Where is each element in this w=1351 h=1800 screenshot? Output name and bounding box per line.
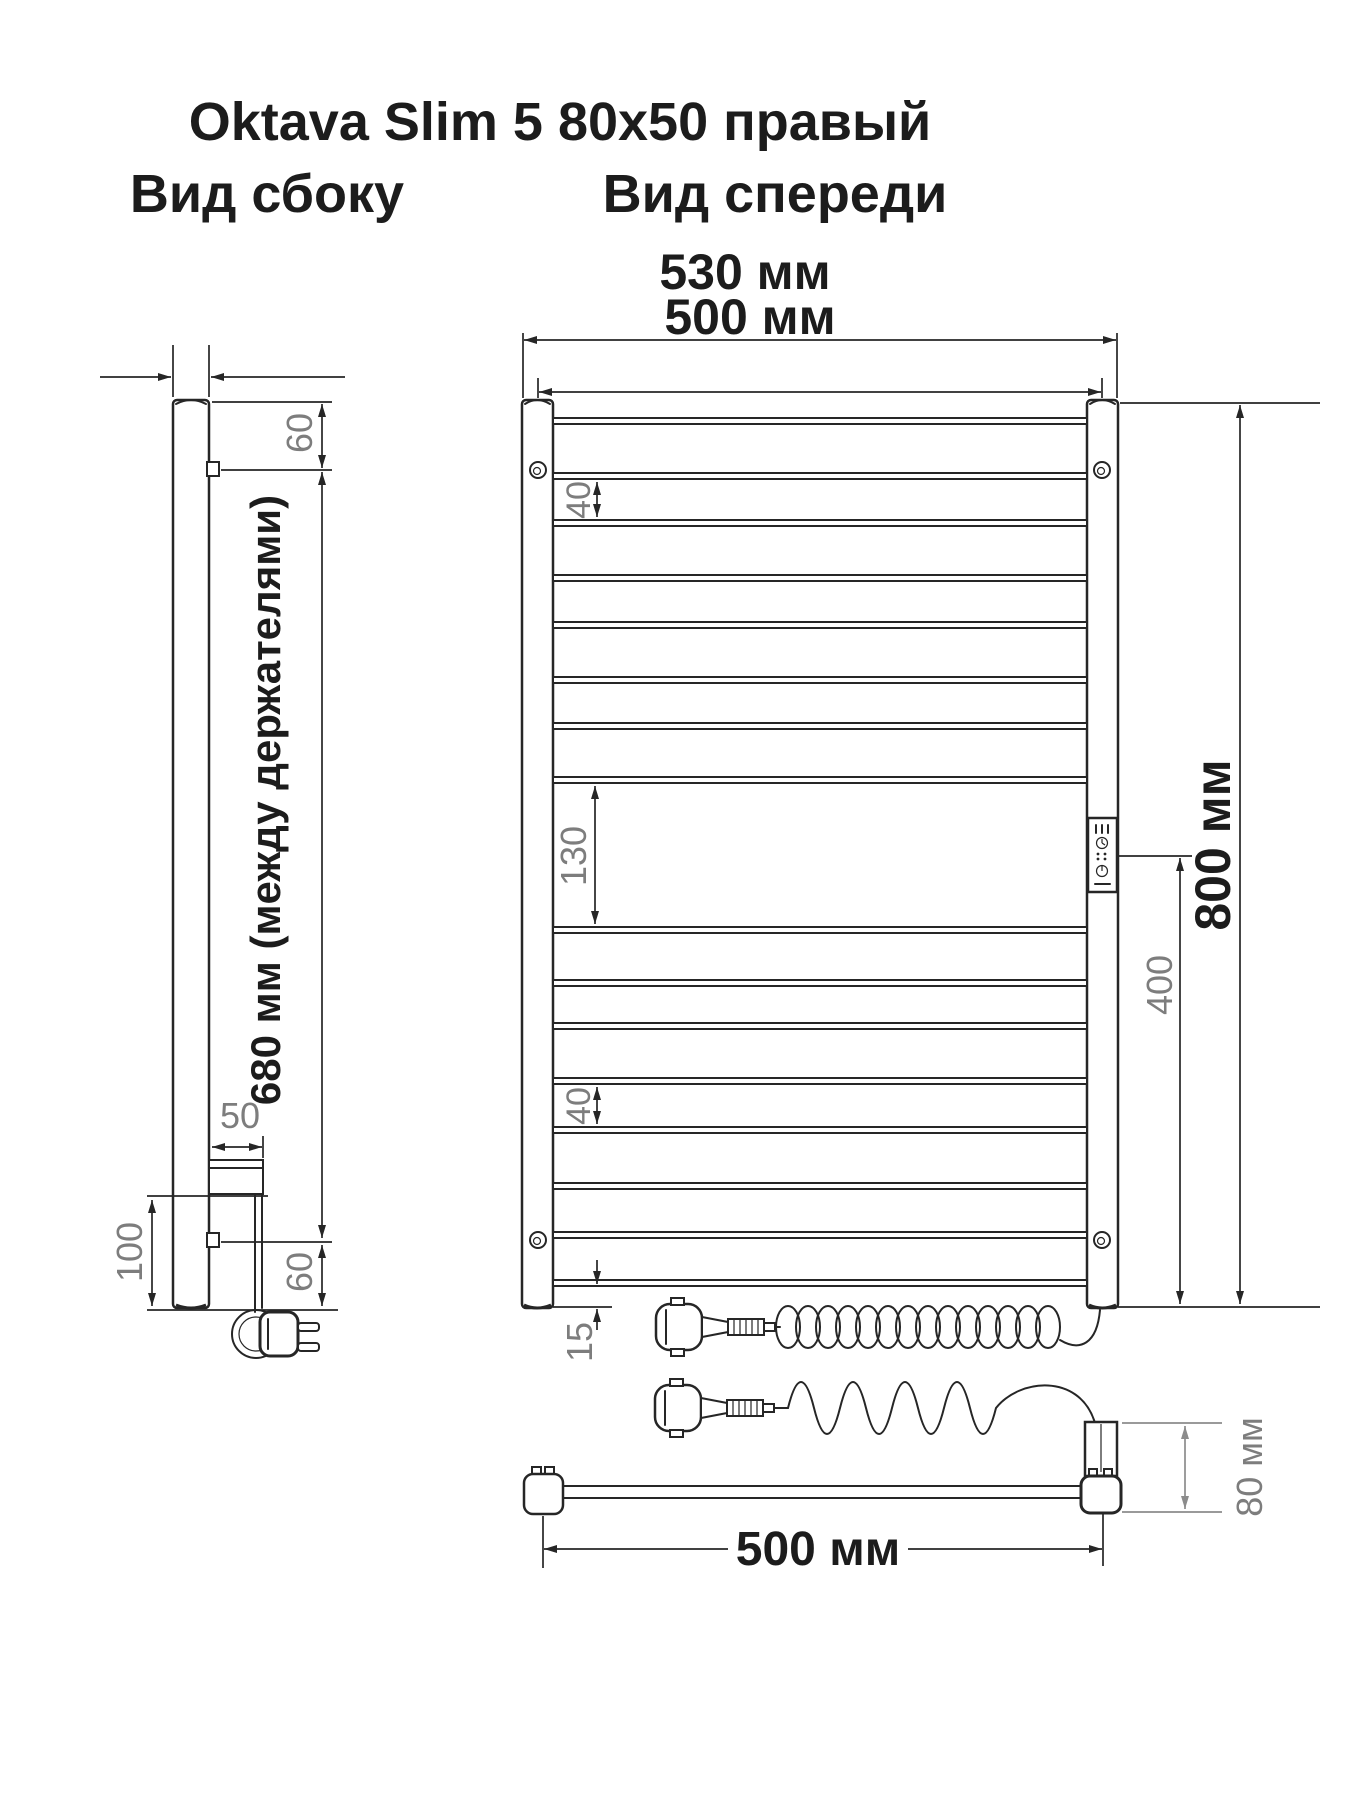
plug-pin-top (298, 1323, 319, 1331)
front-view: 530 мм 500 мм (522, 244, 1320, 1362)
technical-drawing: Oktava Slim 5 80x50 правый Вид сбоку Вид… (0, 0, 1351, 1800)
dim-rung-gap-bottom-value: 40 (560, 1087, 598, 1125)
dim-bottom-clearance: 15 (553, 1260, 612, 1362)
left-end-block (524, 1467, 563, 1514)
rung (553, 473, 1087, 479)
rung (553, 723, 1087, 729)
dim-overall-height-value: 800 мм (1185, 759, 1241, 930)
plug-pin-bottom (298, 1343, 319, 1351)
dim-top-offset: 60 (212, 402, 332, 470)
dim-holder-depth-value: 50 (220, 1095, 260, 1136)
rung (553, 520, 1087, 526)
dim-holder-depth: 50 (212, 1095, 263, 1158)
wavy-cable (774, 1382, 1095, 1434)
coiled-cable (775, 1306, 1100, 1348)
bottom-view: 80 мм 500 мм (524, 1379, 1270, 1576)
dim-axis-width: 500 мм (538, 289, 1102, 398)
dim-depth-value: 80 мм (1229, 1417, 1270, 1517)
heater-housing (1081, 1422, 1121, 1513)
dim-between-holders-value: 680 мм (между держателями) (242, 495, 289, 1105)
page-title: Oktava Slim 5 80x50 правый (189, 92, 932, 152)
dim-depth: 80 мм (1122, 1417, 1270, 1517)
side-view-label: Вид сбоку (130, 164, 404, 224)
dim-rung-gap-top-value: 40 (560, 481, 598, 519)
rung (553, 1232, 1087, 1238)
rung (553, 1183, 1087, 1189)
drawing-sheet: Oktava Slim 5 80x50 правый Вид сбоку Вид… (0, 0, 1351, 1800)
rung (553, 418, 1087, 424)
control-panel[interactable] (1088, 818, 1117, 892)
right-end-block (1081, 1476, 1121, 1513)
dim-bottom-offset-value: 60 (279, 1252, 320, 1292)
dim-panel-to-bottom-value: 400 (1139, 955, 1180, 1015)
plug-body (260, 1312, 298, 1356)
bracket-peg-bottom (207, 1233, 219, 1247)
rung (553, 1023, 1087, 1029)
dim-overall-height: 800 мм (1118, 403, 1320, 1307)
rung (553, 1078, 1087, 1084)
rung (553, 980, 1087, 986)
dim-group-gap-value: 130 (553, 826, 594, 886)
bracket-peg-top (207, 462, 219, 476)
dim-length: 500 мм (543, 1514, 1103, 1576)
side-tube (173, 400, 209, 1308)
power-plug (656, 1298, 775, 1356)
dim-rung-gap-bottom: 40 (560, 1087, 598, 1125)
rung (553, 927, 1087, 933)
dim-rung-gap-top: 40 (560, 481, 598, 519)
dim-bottom-offset: 60 (279, 1245, 322, 1306)
bottom-rail-tube (562, 1486, 1081, 1498)
rung (553, 1280, 1087, 1286)
rung (553, 575, 1087, 581)
rung (553, 777, 1087, 783)
rung (553, 1127, 1087, 1133)
dim-group-gap: 130 (553, 786, 595, 924)
side-view: 60 680 мм (между держателями) 60 50 (100, 345, 345, 1358)
front-view-label: Вид спереди (603, 164, 948, 224)
dim-panel-to-bottom: 400 (1119, 856, 1192, 1304)
dim-bottom-height-value: 100 (109, 1222, 150, 1282)
dim-tube-depth (100, 345, 345, 397)
side-power-plug (232, 1310, 319, 1358)
dim-length-value: 500 мм (736, 1523, 900, 1576)
rung (553, 677, 1087, 683)
rung (553, 622, 1087, 628)
dim-bottom-clearance-value: 15 (559, 1322, 600, 1362)
dim-top-offset-value: 60 (279, 413, 320, 453)
left-rail (522, 400, 553, 1308)
rungs (553, 418, 1087, 1286)
power-plug (655, 1379, 774, 1437)
dim-axis-width-value: 500 мм (664, 289, 835, 345)
